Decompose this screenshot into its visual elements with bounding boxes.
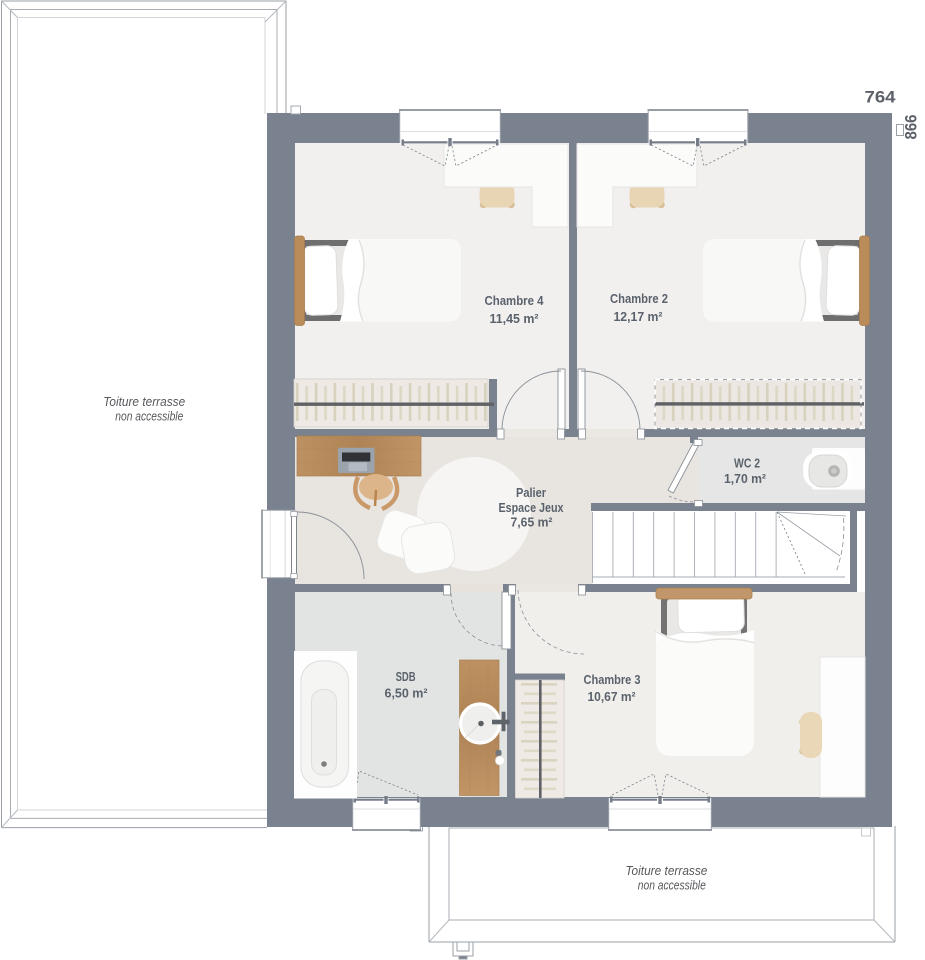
- svg-text:12,17 m²: 12,17 m²: [614, 309, 664, 324]
- svg-text:Toiture terrasse: Toiture terrasse: [625, 864, 707, 878]
- svg-text:866: 866: [903, 115, 921, 140]
- svg-text:Chambre 3: Chambre 3: [584, 672, 641, 687]
- svg-text:7,65 m²: 7,65 m²: [511, 515, 554, 530]
- svg-text:6,50 m²: 6,50 m²: [385, 685, 429, 700]
- svg-text:10,67 m²: 10,67 m²: [588, 689, 637, 704]
- svg-text:1,70 m²: 1,70 m²: [724, 471, 767, 486]
- svg-text:non accessible: non accessible: [638, 879, 706, 893]
- svg-text:Chambre 4: Chambre 4: [485, 293, 545, 308]
- svg-text:Palier: Palier: [516, 485, 546, 500]
- svg-text:SDB: SDB: [396, 669, 416, 684]
- svg-text:764: 764: [865, 89, 897, 107]
- svg-text:Chambre 2: Chambre 2: [610, 291, 668, 306]
- svg-text:11,45 m²: 11,45 m²: [490, 311, 540, 326]
- svg-text:non accessible: non accessible: [115, 409, 183, 423]
- svg-text:WC 2: WC 2: [734, 456, 760, 471]
- svg-text:Espace Jeux: Espace Jeux: [499, 500, 565, 515]
- svg-text:Toiture terrasse: Toiture terrasse: [103, 395, 185, 409]
